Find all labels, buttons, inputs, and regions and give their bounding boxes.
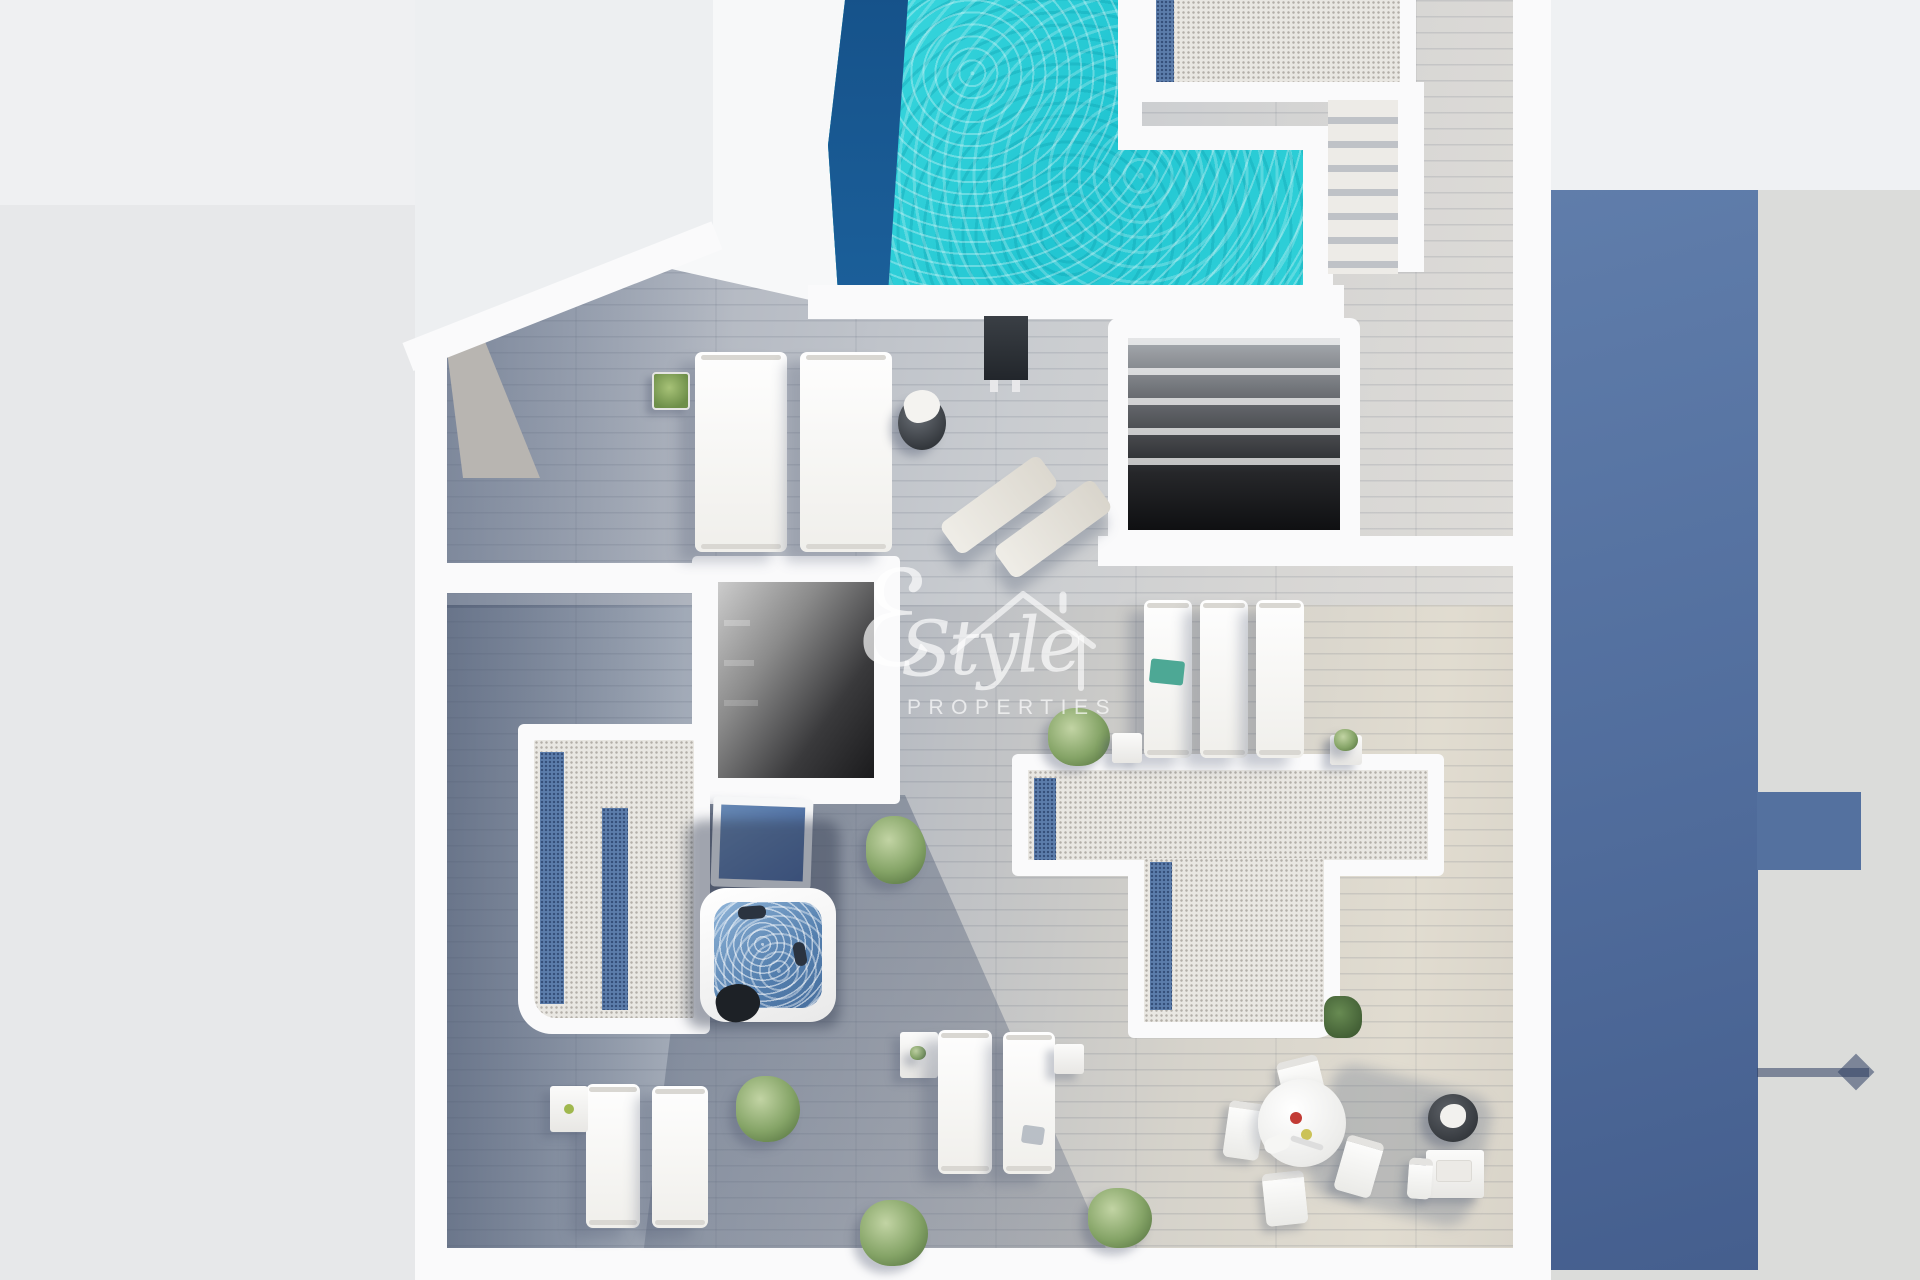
- lawn-patch: [1324, 996, 1362, 1038]
- watermark-tagline: PROPERTIES: [907, 696, 1117, 720]
- stairs-side-wall: [1398, 82, 1424, 272]
- rooftop-terrace-render: ℰ Style PROPERTIES: [0, 0, 1920, 1280]
- pool-bottom-wall: [808, 285, 1344, 319]
- sun-lounger: [800, 352, 892, 552]
- t-platform-blue-strip: [1034, 778, 1056, 860]
- sun-lounger: [652, 1086, 708, 1228]
- t-platform-blue-strip: [1150, 862, 1172, 1010]
- building-cast-shadow-step: [1757, 792, 1861, 870]
- mat-leg: [1012, 380, 1020, 392]
- side-table: [1054, 1044, 1084, 1074]
- towel-on-lounger: [1021, 1125, 1045, 1146]
- white-flower-decor: [1440, 1104, 1466, 1128]
- sun-lounger: [695, 352, 787, 552]
- pergola-slats: [1128, 338, 1340, 470]
- terrace-bottom-wall: [415, 1248, 1551, 1280]
- left-platform-blue-strip: [540, 752, 564, 1004]
- watermark: ℰ Style PROPERTIES: [845, 572, 1185, 742]
- bush: [860, 1200, 928, 1266]
- potted-plant: [736, 1076, 800, 1142]
- terrace-right-wall: [1513, 0, 1551, 1270]
- mat-leg: [990, 380, 998, 392]
- building-cast-shadow: [1548, 190, 1758, 1270]
- atrium-step: [724, 660, 754, 666]
- sun-lounger: [1200, 600, 1248, 758]
- dining-chair: [1407, 1157, 1434, 1200]
- square-planter: [652, 372, 690, 410]
- neighbor-roof-top-strip: [0, 0, 445, 205]
- bush: [1088, 1188, 1152, 1248]
- neighbor-roof-left: [0, 205, 445, 1280]
- serving-tray: [1436, 1160, 1472, 1182]
- pool-towel-mat: [984, 316, 1028, 380]
- sun-lounger: [586, 1084, 640, 1228]
- t-platform-gravel-bar: [1028, 770, 1428, 860]
- pavilion-gravel-roof: [1156, 0, 1400, 82]
- stairs-to-roof: [1328, 100, 1398, 274]
- small-plant: [910, 1046, 926, 1060]
- sun-lounger: [938, 1030, 992, 1174]
- pavilion-blue-gravel-strip: [1156, 0, 1174, 82]
- table-decor-red: [1290, 1112, 1302, 1124]
- atrium-step: [724, 620, 750, 626]
- mid-level-wall-left: [420, 563, 714, 593]
- exterior-top-right: [1548, 0, 1920, 192]
- small-plant: [1334, 729, 1358, 751]
- sun-lounger: [1256, 600, 1304, 758]
- fruit-decor: [564, 1104, 574, 1114]
- atrium-step: [724, 700, 758, 706]
- terrace-left-wall: [415, 338, 447, 1280]
- pool-right-wall-upper: [1118, 0, 1142, 142]
- watermark-name: Style: [899, 599, 1082, 694]
- sun-lounger: [1003, 1032, 1055, 1174]
- dining-chair: [1261, 1170, 1308, 1227]
- left-platform-blue-strip: [602, 808, 628, 1010]
- jacuzzi-headrest: [738, 905, 767, 920]
- potted-plant: [866, 816, 926, 884]
- pool-step-wall: [1118, 126, 1332, 150]
